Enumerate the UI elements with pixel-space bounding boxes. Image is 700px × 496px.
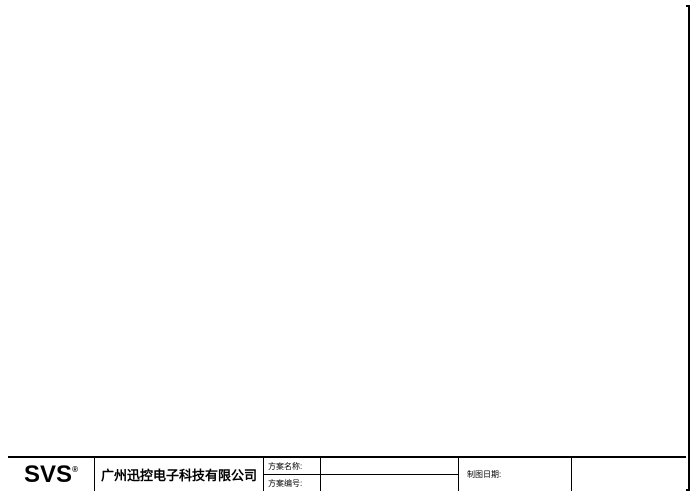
device-label: 混合矩阵MS-RGB0404 xyxy=(248,175,285,191)
feedback-suppressor: 反馈抑制器FB1100 xyxy=(456,163,514,193)
legend-row: 音箱线 xyxy=(12,442,98,450)
aux-speakers: 辅助扩声音箱K-8 xyxy=(574,297,678,351)
hd-host-icon xyxy=(300,156,366,173)
svs-logo: SVS® xyxy=(8,458,95,491)
device-label: 笔记本 xyxy=(198,253,216,261)
wire-legend: 电脑VGA线 复合视频线 通讯控制线 话筒音频线 电源线 音频线 音箱线 xyxy=(12,396,98,449)
device-label: 高清混插主机SV-HD0401 xyxy=(315,175,351,191)
device-label: 无线话筒WD3500 xyxy=(564,113,588,129)
audio-processor: 音频处理器DA206 xyxy=(534,212,600,243)
date-label: 制图日期: xyxy=(459,458,572,491)
legend-swatch xyxy=(52,399,98,401)
camera-icons xyxy=(302,212,370,229)
power-controller-icon xyxy=(106,271,149,293)
device-label: 液晶电视×2 xyxy=(214,293,245,301)
capture-card-line1: 高清视频 xyxy=(248,83,274,92)
power-note-text: 会议主机、反馈抑制器、调音台、音频处理器、功放等电源 xyxy=(33,329,99,352)
power-sequencer: 电源时序器SV-PW8 xyxy=(12,279,86,310)
device-label: 高清遥控摄像头HD1000 xyxy=(315,231,357,247)
speaker-icon xyxy=(600,297,626,333)
receiver-icon xyxy=(146,88,163,97)
device-label: 反馈抑制器FB1100 xyxy=(470,177,500,193)
main-amplifier: 主扩声功放CS2000 xyxy=(492,259,556,291)
aux-amplifier: 辅助扩声功放CSD200 xyxy=(596,255,672,287)
device-label: 发言单元×6MS-900A/B xyxy=(415,276,446,292)
scheme-no-label: 方案编号: xyxy=(264,475,321,491)
legend-swatch xyxy=(52,444,98,446)
main-speaker-icons xyxy=(486,297,556,339)
power-sequencer-icon xyxy=(14,279,84,292)
device-label: 音频处理器DA206 xyxy=(552,227,582,243)
device-label: 投影机 xyxy=(174,294,192,302)
device-label: 辅助扩声音箱K-8 xyxy=(608,335,644,351)
matrix-icon xyxy=(226,156,308,173)
feedback-suppressor-icon xyxy=(460,163,510,175)
gooseneck-mics: 鹅颈话筒×2MS-600 xyxy=(134,160,190,193)
scheme-name-row: 方案名称: xyxy=(264,458,458,475)
touch-panel-icon xyxy=(97,84,129,101)
projector: 投影机 xyxy=(164,274,202,302)
device-label: 鹅颈话筒×2MS-600 xyxy=(147,177,178,193)
device-label: 主扩声功放CS2000 xyxy=(509,275,539,291)
legend-swatch xyxy=(52,429,98,431)
mic-base-icon xyxy=(145,157,180,178)
device-label: 电源时序器SV-PW8 xyxy=(34,294,64,310)
capture-card-line2: 采集卡 xyxy=(251,92,271,101)
legend-swatch xyxy=(52,414,98,416)
desktop-pc-icon xyxy=(177,72,223,102)
speaker-icon xyxy=(522,297,556,339)
legend-swatch xyxy=(52,437,98,439)
scheme-no-row: 方案编号: xyxy=(264,475,458,491)
speaker-icon xyxy=(486,297,520,339)
gooseneck-mic-icon xyxy=(434,244,458,274)
delegate-mic-icons xyxy=(370,244,490,274)
title-block: SVS® 广州迅控电子科技有限公司 方案名称: 方案编号: 制图日期: xyxy=(8,456,686,491)
device-label: 主扩声音箱T-12 xyxy=(506,341,536,357)
device-label: 触摸屏接收器RECV-200 xyxy=(136,98,172,114)
aux-amp-icon xyxy=(605,255,663,269)
conference-host-icon xyxy=(367,160,419,178)
audio-processor-icon xyxy=(540,212,594,225)
wiring-layer xyxy=(0,0,700,496)
power-note-box: 会议主机、反馈抑制器、调音台、音频处理器、功放等电源 xyxy=(28,324,104,357)
speaker-icon xyxy=(652,297,678,333)
gooseneck-mic-icon xyxy=(402,244,426,274)
camera-icon xyxy=(340,210,365,231)
legend-swatch xyxy=(52,406,98,408)
delegate-units: 发言单元×6MS-900A/B xyxy=(370,244,490,292)
electric-screen: 电动幕布 xyxy=(102,325,154,363)
wireless-receiver-icon xyxy=(547,101,605,111)
main-amp-icon xyxy=(495,259,553,273)
hd-host: 高清混插主机SV-HD0401 xyxy=(298,156,368,191)
aux-speaker-icons xyxy=(574,297,678,333)
tv-icon xyxy=(207,265,251,291)
device-label: DVD机 xyxy=(206,179,225,187)
scheme-no-value xyxy=(321,475,458,491)
scheme-name-label: 方案名称: xyxy=(264,458,321,474)
remote-video-pc: 电脑(远程视频软件) xyxy=(172,72,228,120)
hd-capture-card-box: 高清视频 采集卡 xyxy=(236,78,286,106)
company-name: 广州迅控电子科技有限公司 xyxy=(95,458,264,491)
device-label: 辅助扩声功放CSD200 xyxy=(616,271,652,287)
power-controller: 电源控制器SV-SP8 xyxy=(102,275,154,307)
device-label: 无线触摸屏SV WZ2000 xyxy=(97,102,129,118)
laptop: 笔记本 xyxy=(182,224,232,261)
device-label: 电动幕布 xyxy=(116,355,140,363)
main-speakers: 主扩声音箱T-12 xyxy=(486,297,556,357)
mixer-console: 调音台8DX/4B1 xyxy=(536,140,632,196)
central-control-icon xyxy=(140,128,246,143)
device-label: 电脑(远程视频软件) xyxy=(180,104,220,120)
camera-icon xyxy=(306,210,331,231)
device-label: 会议主机MS-800P xyxy=(380,180,405,196)
wireless-mic-set: 无线话筒WD3500 xyxy=(542,90,610,129)
legend-swatch xyxy=(52,422,98,424)
scheme-cells: 方案名称: 方案编号: xyxy=(264,458,459,491)
registered-mark: ® xyxy=(72,465,78,474)
drawing-sheet: 无线触摸屏SV WZ2000 触摸屏接收器RECV-200 电脑(远程视频软件)… xyxy=(0,0,700,496)
handheld-mics-icon xyxy=(565,90,587,99)
legend-label: 音箱线 xyxy=(12,441,52,450)
gooseneck-mic-icon xyxy=(370,244,394,274)
date-value xyxy=(572,458,686,491)
lcd-tv: 液晶电视×2 xyxy=(202,265,256,301)
speaker-icon xyxy=(626,297,652,333)
projector-icon xyxy=(166,274,201,292)
screen-icon xyxy=(103,325,153,353)
scheme-name-value xyxy=(321,458,458,474)
device-label: 电源控制器SV-SP8 xyxy=(113,291,143,307)
ptz-cameras: 高清遥控摄像头HD1000 xyxy=(302,212,370,247)
conference-host: 会议主机MS-800P xyxy=(364,160,422,196)
speaker-icon xyxy=(574,297,600,333)
laptop-icon xyxy=(184,224,230,251)
gooseneck-mic-icon xyxy=(466,244,490,274)
